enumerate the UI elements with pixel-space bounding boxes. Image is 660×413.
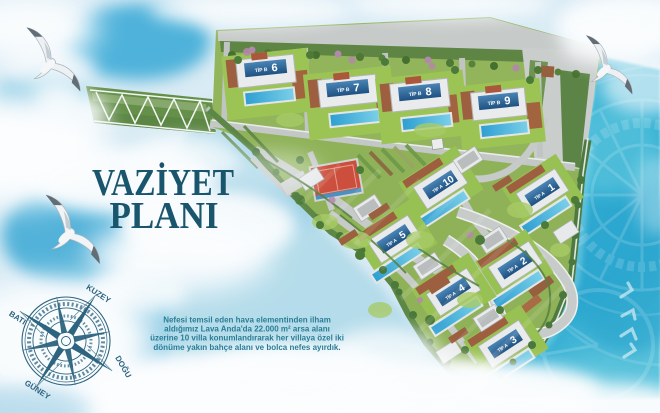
svg-text:TİP B: TİP B — [487, 99, 501, 107]
svg-text:7: 7 — [353, 82, 360, 95]
svg-text:PLANI: PLANI — [110, 195, 219, 237]
svg-text:TİP B: TİP B — [254, 66, 268, 74]
svg-text:üzerine 10 villa konumlandırar: üzerine 10 villa konumlandırarak her vil… — [150, 334, 344, 343]
svg-text:Nefesi temsil eden hava elemen: Nefesi temsil eden hava elementinden ilh… — [163, 316, 331, 325]
svg-text:8: 8 — [425, 86, 432, 99]
svg-text:TİP B: TİP B — [408, 90, 422, 98]
svg-text:6: 6 — [271, 62, 278, 75]
svg-text:dönüme yakın bahçe alanı ve bo: dönüme yakın bahçe alanı ve bolca nefes … — [153, 343, 340, 352]
svg-text:TİP B: TİP B — [336, 86, 350, 94]
svg-text:aldığımız Lava Anda'da 22.000: aldığımız Lava Anda'da 22.000 m² arsa al… — [164, 325, 330, 334]
svg-text:9: 9 — [504, 95, 511, 108]
